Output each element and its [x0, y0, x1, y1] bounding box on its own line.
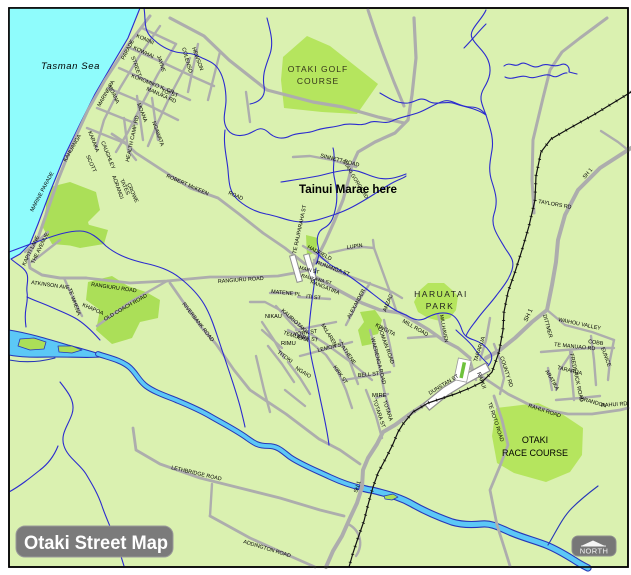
svg-text:OTAKI GOLF: OTAKI GOLF: [288, 64, 348, 74]
svg-text:COURSE: COURSE: [297, 76, 339, 86]
svg-text:NORTH: NORTH: [580, 547, 609, 556]
svg-text:OTAKI: OTAKI: [522, 435, 548, 445]
svg-text:NIKAU: NIKAU: [265, 314, 282, 320]
svg-text:PARK: PARK: [426, 301, 455, 311]
svg-text:Otaki Street Map: Otaki Street Map: [24, 532, 168, 554]
svg-text:HARUATAI: HARUATAI: [414, 289, 468, 299]
svg-text:Tainui Marae here: Tainui Marae here: [299, 184, 397, 196]
svg-text:Tasman Sea: Tasman Sea: [41, 61, 100, 72]
svg-text:RACE COURSE: RACE COURSE: [502, 448, 568, 458]
svg-text:RIMU: RIMU: [281, 341, 296, 347]
svg-text:MIRE: MIRE: [372, 393, 387, 399]
